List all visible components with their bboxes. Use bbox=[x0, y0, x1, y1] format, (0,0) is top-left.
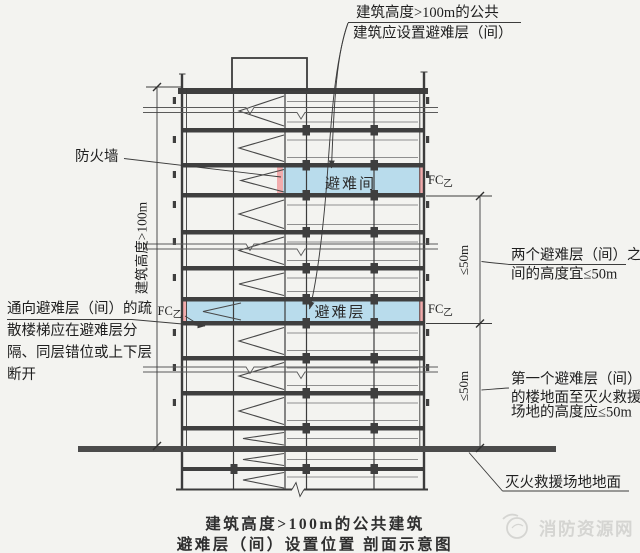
caption-line2: 避难层（间）设置位置 剖面示意图 bbox=[177, 535, 453, 553]
top-note-line1: 建筑高度>100m的公共 bbox=[356, 4, 499, 21]
fc-class: 乙 bbox=[173, 310, 183, 321]
ground-lines bbox=[78, 446, 556, 452]
building-height-dim-label: 建筑高度>100m bbox=[134, 201, 150, 294]
section-diagram-page: 建筑高度>100m ≤50m ≤50m 建筑高度>100m的公共 建筑应设置避难… bbox=[0, 0, 640, 553]
fc-prefix: FC bbox=[158, 304, 173, 318]
floor-slabs bbox=[178, 88, 428, 471]
building-section-svg: 建筑高度>100m ≤50m ≤50m 建筑高度>100m的公共 建筑应设置避难… bbox=[0, 0, 640, 553]
annotation-texts: 建筑高度>100m的公共 建筑应设置避难层（间） 防火墙 通向避难层（间）的疏 … bbox=[7, 4, 640, 491]
first-refuge-note-line1: 第一个避难层（间） bbox=[511, 370, 640, 388]
firewall-label: 防火墙 bbox=[75, 148, 119, 165]
building-frame bbox=[176, 58, 428, 497]
fc-class: 乙 bbox=[443, 308, 453, 319]
dim-upper-50m: ≤50m bbox=[456, 245, 471, 275]
rescue-site-ground-bar bbox=[78, 446, 556, 452]
caption-line1: 建筑高度>100m的公共建筑 bbox=[205, 514, 425, 533]
roof-penthouse bbox=[232, 58, 307, 90]
fire-resource-logo-icon bbox=[503, 515, 527, 538]
section-break-bottom bbox=[292, 483, 304, 497]
refuge-room-label: 避难间 bbox=[325, 176, 376, 193]
spacing-note-line2: 间的高度宜≤50m bbox=[511, 266, 618, 283]
spacing-note-line1: 两个避难层（间）之 bbox=[511, 247, 640, 264]
fc-prefix: FC bbox=[428, 173, 443, 187]
dim-lower-50m: ≤50m bbox=[456, 371, 471, 401]
first-refuge-note-line2: 的楼地面至灭火救援 bbox=[511, 389, 640, 406]
watermark: 消防资源网 bbox=[503, 515, 634, 539]
stair-note-line3: 隔、同层错位或上下层 bbox=[7, 344, 152, 361]
stair-note-line2: 散楼梯应在避难层分 bbox=[7, 321, 138, 339]
stair-note-line1: 通向避难层（间）的疏 bbox=[7, 300, 152, 317]
fc-class: 乙 bbox=[443, 179, 453, 190]
fire-window-label-room-right: FC乙 bbox=[428, 173, 453, 190]
top-note-line2: 建筑应设置避难层（间） bbox=[353, 24, 513, 42]
fire-window-label-floor-left: FC乙 bbox=[158, 304, 183, 321]
dimension-right: ≤50m ≤50m bbox=[426, 192, 492, 452]
caption: 建筑高度>100m的公共建筑 避难层（间）设置位置 剖面示意图 bbox=[177, 514, 453, 553]
rescue-ground-label: 灭火救援场地地面 bbox=[505, 474, 621, 491]
watermark-text: 消防资源网 bbox=[539, 519, 634, 539]
fire-window-label-floor-right: FC乙 bbox=[428, 302, 453, 319]
first-refuge-note-line3: 场地的高度应≤50m bbox=[511, 403, 632, 421]
leader-spacing-note bbox=[482, 262, 510, 265]
break-lines bbox=[143, 108, 438, 379]
leader-first-refuge-note bbox=[482, 388, 510, 390]
fc-prefix: FC bbox=[428, 302, 443, 316]
stair-note-line4: 断开 bbox=[7, 366, 36, 383]
leader-firewall bbox=[124, 159, 281, 178]
refuge-floor-label: 避难层 bbox=[314, 304, 365, 321]
